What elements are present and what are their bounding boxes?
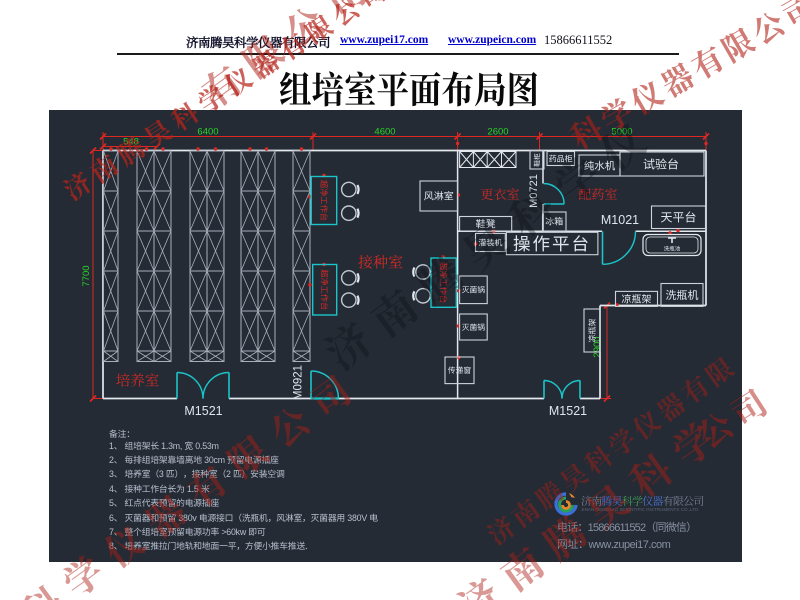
svg-text:灭菌锅: 灭菌锅: [462, 285, 486, 296]
svg-text:4600: 4600: [374, 127, 395, 138]
svg-text:超净工作台: 超净工作台: [319, 269, 331, 310]
svg-text:凉瓶架: 凉瓶架: [587, 319, 598, 343]
svg-text:M1521: M1521: [184, 404, 222, 418]
svg-text:洗瓶池: 洗瓶池: [664, 245, 681, 253]
svg-text:冰箱: 冰箱: [545, 215, 563, 228]
svg-text:凉瓶架: 凉瓶架: [622, 291, 652, 306]
svg-text:接种室: 接种室: [358, 251, 403, 272]
svg-text:M1521: M1521: [549, 404, 587, 418]
svg-text:配药室: 配药室: [578, 184, 617, 203]
svg-text:培养室: 培养室: [116, 370, 160, 391]
svg-text:M0721: M0721: [528, 174, 540, 208]
svg-text:灭菌锅: 灭菌锅: [462, 322, 486, 333]
svg-text:更衣室: 更衣室: [480, 184, 519, 203]
svg-text:超净工作台: 超净工作台: [438, 262, 450, 303]
svg-text:2600: 2600: [487, 127, 508, 138]
svg-text:试验台: 试验台: [643, 155, 679, 172]
svg-text:天平台: 天平台: [660, 209, 696, 226]
svg-text:M1021: M1021: [601, 213, 639, 227]
svg-text:5000: 5000: [611, 127, 632, 138]
svg-text:6400: 6400: [197, 127, 218, 138]
svg-text:7700: 7700: [81, 265, 92, 286]
svg-text:鞋柜: 鞋柜: [531, 153, 541, 167]
svg-text:风淋室: 风淋室: [424, 188, 454, 203]
svg-text:超净工作台: 超净工作台: [318, 180, 330, 221]
svg-text:M0921: M0921: [293, 365, 305, 400]
svg-text:洗瓶机: 洗瓶机: [666, 287, 699, 303]
svg-text:鞋凳: 鞋凳: [476, 215, 496, 230]
svg-text:操作平台: 操作平台: [513, 231, 591, 256]
svg-text:灌装机: 灌装机: [478, 237, 502, 248]
svg-text:传递窗: 传递窗: [448, 365, 472, 376]
svg-text:548: 548: [123, 137, 139, 148]
svg-text:药品柜: 药品柜: [549, 154, 573, 165]
svg-text:纯水机: 纯水机: [584, 158, 616, 173]
